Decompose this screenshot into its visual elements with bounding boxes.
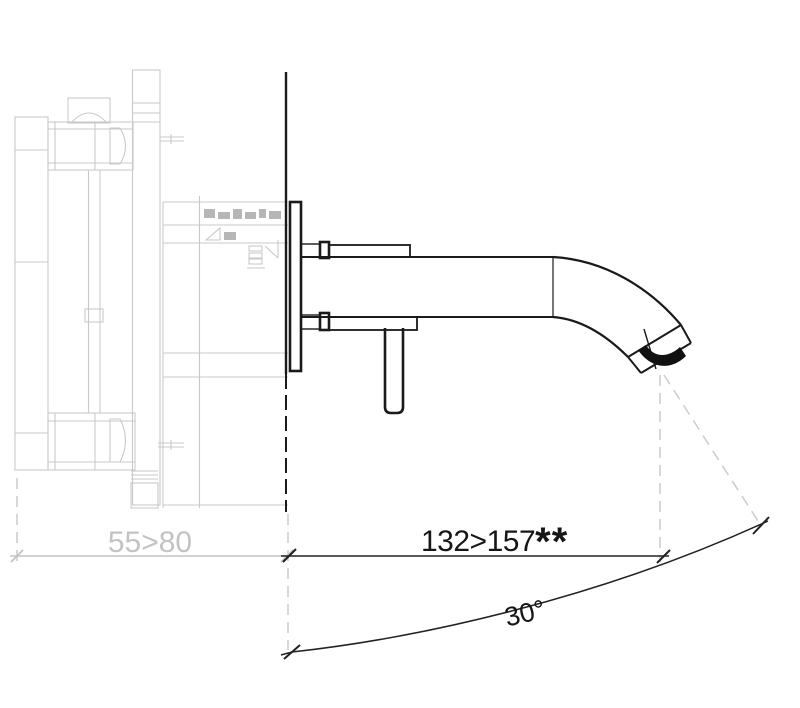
depth-dimension-label: 55>80 <box>108 526 192 559</box>
upper-housing-bar <box>329 245 410 257</box>
ghost-foot <box>131 483 158 508</box>
arc-tick <box>753 517 769 534</box>
ghost-back-plate <box>15 117 48 470</box>
wall-plate <box>290 202 301 371</box>
lower-collar <box>320 313 329 330</box>
ghost-upper-port-cap <box>110 128 126 164</box>
aerator-outlet <box>638 345 686 366</box>
lever-handle <box>385 328 403 413</box>
spout-inner-curve <box>553 317 628 357</box>
hatch-mark <box>204 209 215 218</box>
faucet-body <box>290 202 691 413</box>
hatch-mark <box>269 211 281 219</box>
projection-dimension-label: 132>157** <box>421 520 568 564</box>
upper-trim <box>301 244 320 257</box>
technical-drawing-canvas: 55>80 132>157** 30° <box>0 0 800 708</box>
extension-lines <box>17 375 758 650</box>
in-wall-valve-ghost <box>15 70 288 508</box>
hatch-mark <box>218 212 230 219</box>
ghost-detail-rung <box>249 259 262 264</box>
hatch-mark <box>224 232 236 240</box>
hatch-mark <box>245 212 256 219</box>
hatch-mark <box>233 209 242 219</box>
ghost-supply-column <box>133 70 161 505</box>
ghost-triangle-symbol <box>206 228 220 240</box>
spout-outer-curve <box>553 257 681 325</box>
projection-dimension-footnote: ** <box>535 520 568 564</box>
ghost-detail-rung <box>249 246 262 251</box>
angle-reference-line <box>664 375 758 521</box>
ghost-detail-rung <box>249 253 262 258</box>
angle-dimension-label: 30° <box>502 594 549 632</box>
ghost-wedge-line <box>265 246 278 258</box>
aerator-ring-side <box>628 357 641 373</box>
upper-collar <box>320 242 329 258</box>
aerator-ring-side <box>681 325 691 343</box>
ghost-lower-port-cap <box>110 419 126 462</box>
projection-dimension-value: 132>157 <box>421 525 535 558</box>
hatch-mark <box>259 209 266 218</box>
faucet-installation-drawing: 55>80 132>157** 30° <box>0 0 800 708</box>
